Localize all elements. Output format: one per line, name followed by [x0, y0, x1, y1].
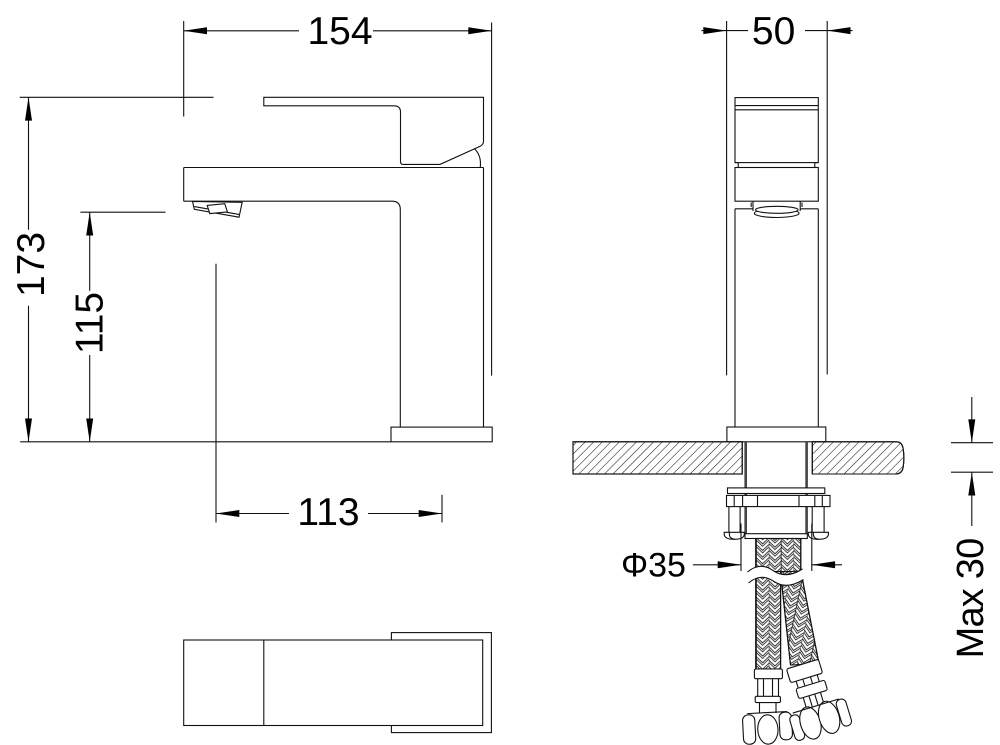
svg-text:115: 115 — [69, 292, 112, 354]
svg-text:50: 50 — [752, 10, 795, 53]
svg-text:Max 30: Max 30 — [950, 539, 992, 659]
svg-text:Φ35: Φ35 — [621, 547, 686, 585]
svg-text:173: 173 — [10, 232, 53, 297]
svg-text:154: 154 — [307, 10, 372, 53]
svg-text:113: 113 — [297, 491, 359, 534]
